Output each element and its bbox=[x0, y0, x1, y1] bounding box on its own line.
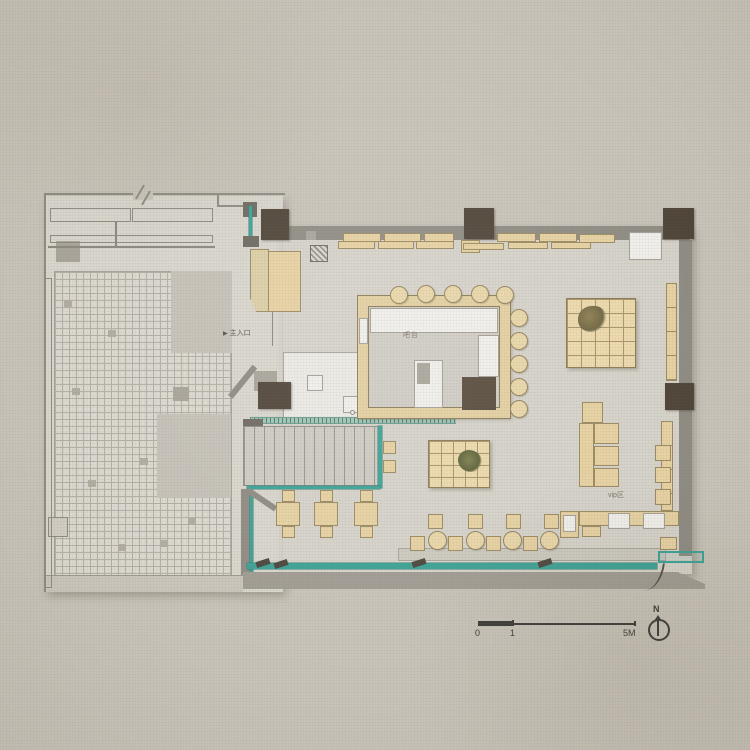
bottom-sill bbox=[243, 572, 705, 589]
wall-bench bbox=[463, 243, 504, 250]
left-fence bbox=[45, 278, 52, 588]
floor-plan-canvas: ▶ 主入口 吧台 vip区 0 1 5M N bbox=[0, 0, 750, 750]
court-line-h bbox=[48, 246, 215, 248]
outdoor-bench bbox=[132, 208, 213, 222]
bar-counter-top bbox=[370, 308, 498, 333]
bar-counter-right bbox=[478, 335, 499, 377]
bar-stool bbox=[510, 378, 528, 396]
table bbox=[276, 502, 300, 526]
chair bbox=[320, 490, 333, 502]
column bbox=[663, 208, 694, 239]
stairs bbox=[243, 426, 380, 486]
column bbox=[258, 382, 291, 409]
round-table bbox=[540, 531, 559, 550]
vip-counter-white bbox=[643, 513, 665, 529]
wall-bench bbox=[508, 242, 548, 249]
door-glass bbox=[249, 206, 252, 240]
tile-accent bbox=[140, 458, 148, 465]
stool-square bbox=[428, 514, 443, 529]
outdoor-bench bbox=[50, 235, 213, 243]
scale-zero-label: 0 bbox=[475, 628, 480, 638]
vip-label: vip区 bbox=[608, 492, 624, 500]
stool-square bbox=[506, 514, 521, 529]
tile-accent bbox=[72, 388, 80, 395]
table bbox=[354, 502, 378, 526]
entrance-label: ▶ 主入口 bbox=[223, 330, 251, 338]
left-glass-low bbox=[250, 492, 253, 574]
vip-sofa bbox=[594, 423, 619, 444]
kitchen-box bbox=[307, 375, 323, 391]
column bbox=[665, 383, 694, 410]
wall-bench bbox=[539, 233, 577, 242]
tile-accent bbox=[118, 544, 126, 551]
bar-stool bbox=[510, 355, 528, 373]
vip-counter-white bbox=[563, 515, 576, 532]
scale-bar: 0 1 5M bbox=[468, 604, 668, 644]
bar-appliance bbox=[417, 363, 430, 384]
courtyard-curb bbox=[45, 575, 243, 592]
court-line-v bbox=[115, 222, 117, 247]
right-shelf bbox=[666, 283, 677, 381]
north-circle bbox=[648, 619, 670, 641]
bar-stool bbox=[471, 285, 489, 303]
round-table bbox=[428, 531, 447, 550]
equipment-small bbox=[306, 231, 316, 240]
tile-accent bbox=[188, 518, 196, 525]
column bbox=[464, 208, 494, 239]
wall-bench bbox=[416, 241, 454, 249]
bar-stool bbox=[510, 400, 528, 418]
host-stand bbox=[310, 245, 328, 262]
door-frame-bottom bbox=[243, 236, 259, 247]
bar-stool bbox=[496, 286, 514, 304]
vip-counter-white bbox=[608, 513, 630, 529]
vip-sofa bbox=[582, 402, 603, 423]
chair bbox=[282, 490, 295, 502]
outdoor-bench bbox=[50, 208, 131, 222]
stool-square bbox=[523, 536, 538, 551]
door-swing-line bbox=[272, 312, 273, 346]
vip-sofa bbox=[579, 423, 594, 487]
stool-square bbox=[383, 460, 396, 473]
bar-stool bbox=[444, 285, 462, 303]
vip-sofa bbox=[594, 468, 619, 487]
vip-cushion bbox=[655, 489, 671, 505]
tile-accent bbox=[160, 540, 168, 547]
entry-cabinet-left bbox=[250, 249, 269, 312]
wall-bench bbox=[551, 242, 591, 249]
scale-bar-thin-segment bbox=[513, 623, 635, 625]
stool-square bbox=[544, 514, 559, 529]
faucet bbox=[350, 410, 355, 415]
north-arrow: N bbox=[644, 604, 674, 646]
stool-square bbox=[468, 514, 483, 529]
site-wall-top bbox=[45, 193, 285, 195]
bar-label: 吧台 bbox=[403, 332, 419, 340]
wall-bench bbox=[378, 241, 414, 249]
courtyard-patch-1 bbox=[171, 271, 232, 353]
glass-partition bbox=[250, 417, 456, 424]
stool-square bbox=[448, 536, 463, 551]
stool-square bbox=[486, 536, 501, 551]
service-box bbox=[629, 232, 662, 260]
stool-square bbox=[383, 441, 396, 454]
glass-wall-bottom bbox=[247, 563, 657, 569]
bar-side-unit bbox=[359, 318, 368, 344]
chair bbox=[360, 526, 373, 538]
scale-5m-label: 5M bbox=[623, 628, 636, 638]
tile-accent bbox=[108, 330, 116, 337]
bar-stool bbox=[390, 286, 408, 304]
stool-square bbox=[410, 536, 425, 551]
chair bbox=[320, 526, 333, 538]
scale-bar-end-tick bbox=[634, 621, 636, 626]
entry-cabinet-right bbox=[268, 251, 301, 312]
stairs-glass-right bbox=[378, 426, 382, 488]
site-wall-left bbox=[44, 193, 46, 592]
vip-cushion bbox=[655, 445, 671, 461]
round-table bbox=[503, 531, 522, 550]
bar-stool bbox=[510, 332, 528, 350]
plant bbox=[458, 450, 482, 472]
scale-bar-thick-segment bbox=[478, 621, 513, 626]
column bbox=[261, 209, 289, 240]
chair bbox=[282, 526, 295, 538]
scale-one-label: 1 bbox=[510, 628, 515, 638]
vip-sofa bbox=[594, 446, 619, 466]
round-table bbox=[466, 531, 485, 550]
planter bbox=[173, 387, 189, 401]
courtyard-patch-2 bbox=[157, 414, 231, 498]
entrance-label-text: 主入口 bbox=[230, 330, 251, 337]
wall-bench bbox=[338, 241, 375, 249]
chair bbox=[360, 490, 373, 502]
stairs-glass-bottom bbox=[247, 486, 380, 489]
bar-equipment bbox=[462, 377, 496, 410]
north-label: N bbox=[653, 604, 660, 614]
vip-counter-step bbox=[582, 526, 601, 537]
vip-side-table bbox=[660, 537, 677, 550]
table bbox=[314, 502, 338, 526]
tile-accent bbox=[64, 300, 72, 307]
bar-stool bbox=[510, 309, 528, 327]
planter bbox=[56, 241, 80, 262]
wall-bench bbox=[497, 233, 536, 242]
bar-stool bbox=[417, 285, 435, 303]
glass-wall-corner bbox=[658, 551, 704, 563]
vip-cushion bbox=[655, 467, 671, 483]
tile-accent bbox=[88, 480, 96, 487]
entrance-arrow-icon: ▶ bbox=[223, 331, 228, 337]
